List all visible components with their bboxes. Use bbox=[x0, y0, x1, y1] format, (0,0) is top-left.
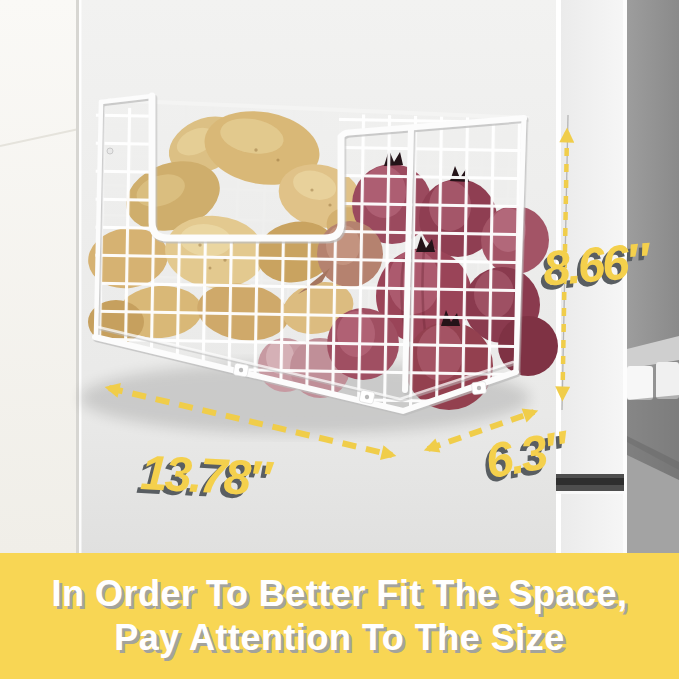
banner-line-2: Pay Attention To The Size bbox=[114, 616, 565, 660]
banner-line-1: In Order To Better Fit The Space, bbox=[52, 572, 628, 616]
width-dimension-label: 13.78″ bbox=[139, 448, 269, 504]
height-dimension-label: 8.66″ bbox=[541, 236, 649, 294]
size-warning-banner: In Order To Better Fit The Space, Pay At… bbox=[0, 553, 679, 679]
left-wall bbox=[0, 0, 82, 553]
product-size-infographic: 8.66″ 13.78″ 6.3″ In Order To Better Fit… bbox=[0, 0, 679, 679]
